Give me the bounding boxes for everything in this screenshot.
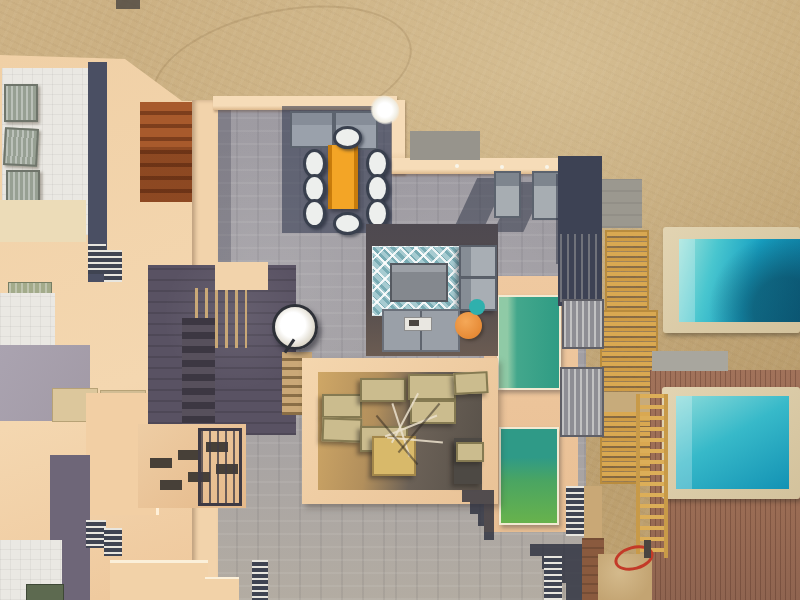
wall-lamp (545, 165, 549, 169)
louvre-vent (566, 486, 586, 536)
louvre-vent (104, 528, 122, 556)
louvre-vent (252, 560, 268, 600)
wall-lamp (500, 165, 504, 169)
hose-reel-post (644, 540, 651, 558)
orange-pouf (455, 312, 482, 339)
slatted-gate (562, 299, 604, 349)
pool-steps (676, 396, 692, 489)
ac-unit (4, 84, 38, 122)
pergola-slats (605, 230, 649, 312)
aerial-villa-photo (0, 0, 800, 600)
ac-unit (26, 584, 64, 600)
dining-chair (333, 126, 362, 149)
khaki-sofa (322, 394, 362, 418)
villa-roof (205, 577, 239, 600)
white-gravel-roof (0, 293, 55, 347)
louvre-vent (104, 250, 122, 282)
satellite-dish (272, 304, 318, 350)
roof-railing (198, 428, 242, 506)
garden-wall (584, 486, 602, 540)
sun-lounger (494, 171, 521, 218)
pool-steps (679, 239, 695, 322)
seat-cushion (456, 442, 484, 462)
wall-lamp (455, 164, 459, 168)
skylight-slot (150, 458, 172, 468)
courtyard-floor (318, 372, 482, 490)
teal-pouf (469, 299, 485, 315)
terracotta-stairs (140, 102, 192, 202)
concrete-pad (410, 131, 480, 160)
roof-platform (0, 200, 86, 242)
khaki-sofa (322, 417, 363, 442)
skylight-roof (138, 424, 246, 508)
stairs (182, 318, 215, 425)
skylight-slot (178, 450, 200, 460)
swimming-pool-turquoise (679, 239, 800, 322)
louvre-vent (86, 520, 106, 548)
outdoor-sofa (290, 111, 334, 148)
walled-courtyard (302, 358, 498, 504)
skylight-slot (160, 480, 182, 490)
coffee-table (390, 263, 448, 302)
structure-slats (560, 234, 600, 302)
roof-vent-top (116, 0, 140, 9)
stone-walk (652, 351, 728, 371)
plunge-pool-green (497, 295, 561, 390)
shaded-structure (558, 156, 602, 306)
khaki-lounger (453, 371, 488, 395)
plunge-pool-green (499, 427, 559, 525)
ac-unit (3, 127, 39, 167)
slatted-gate (560, 367, 604, 437)
khaki-sofa (360, 378, 406, 402)
dining-chair (333, 212, 362, 235)
stair-shadow (462, 490, 502, 546)
tray-item (409, 320, 419, 326)
dining-table (328, 145, 358, 209)
swimming-pool-turquoise (676, 396, 789, 489)
villa-roof (110, 560, 208, 600)
dining-chair (303, 199, 326, 228)
wall-corner (215, 262, 268, 290)
timber-fence (636, 394, 668, 558)
louvre-vent (544, 556, 562, 600)
lounge-chair (459, 245, 497, 278)
